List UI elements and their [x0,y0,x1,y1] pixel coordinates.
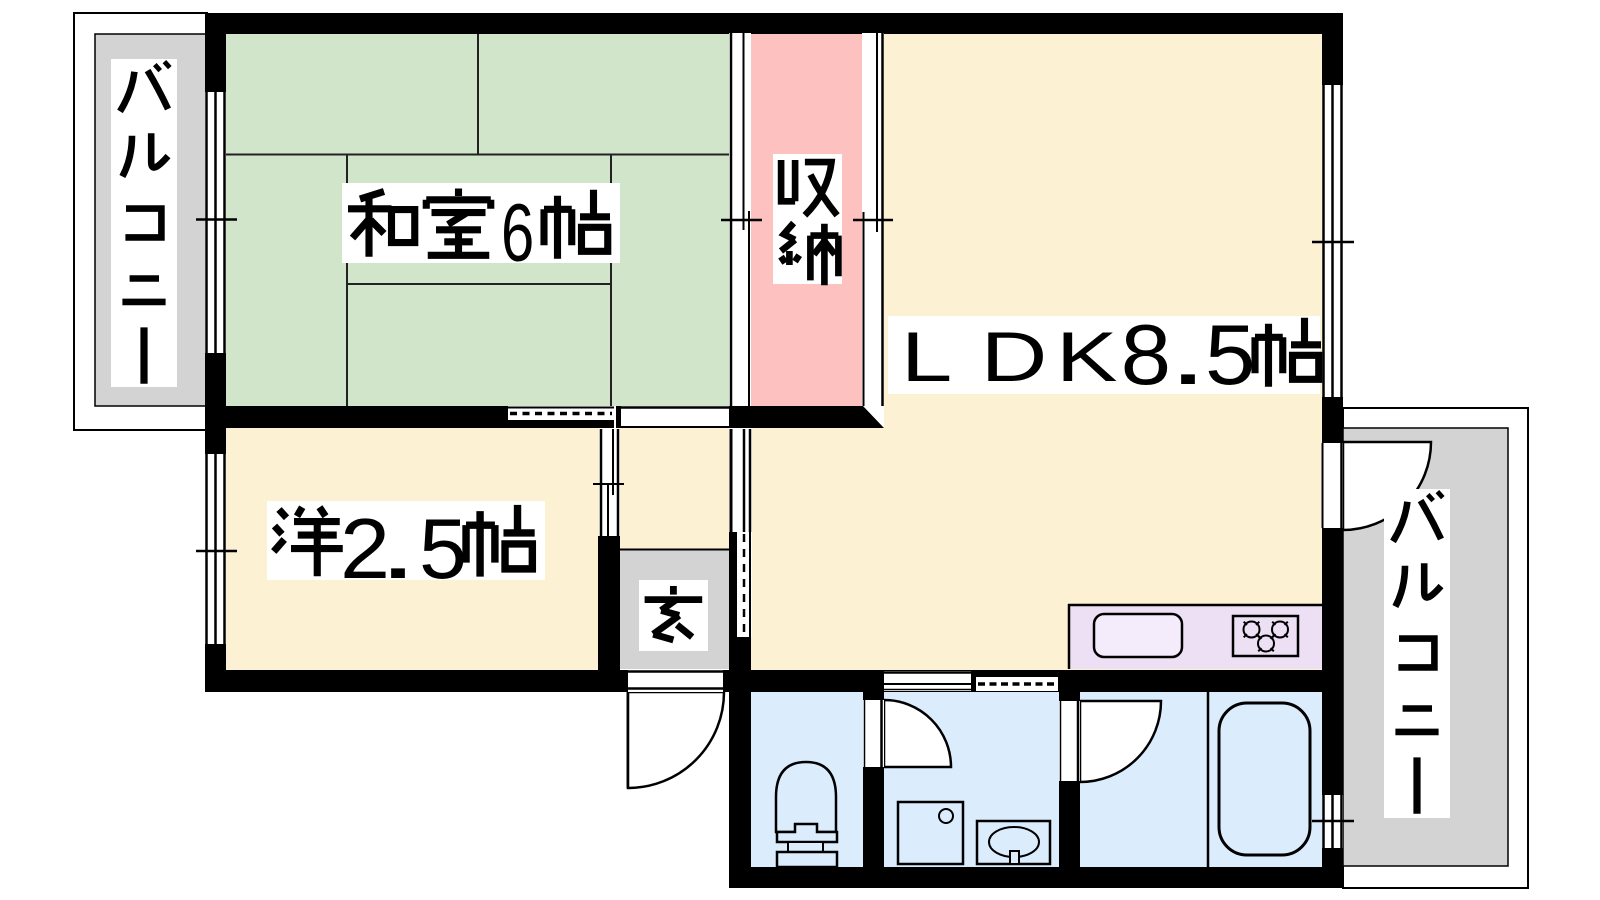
svg-text:.: . [378,497,418,597]
svg-text:D: D [981,318,1048,396]
svg-text:8: 8 [1121,306,1171,402]
svg-text:5: 5 [1205,306,1255,402]
svg-text:K: K [1056,318,1117,396]
svg-text:6: 6 [501,187,534,278]
svg-text:5: 5 [419,501,467,597]
svg-text:L: L [901,318,952,396]
svg-text:.: . [1168,303,1208,403]
